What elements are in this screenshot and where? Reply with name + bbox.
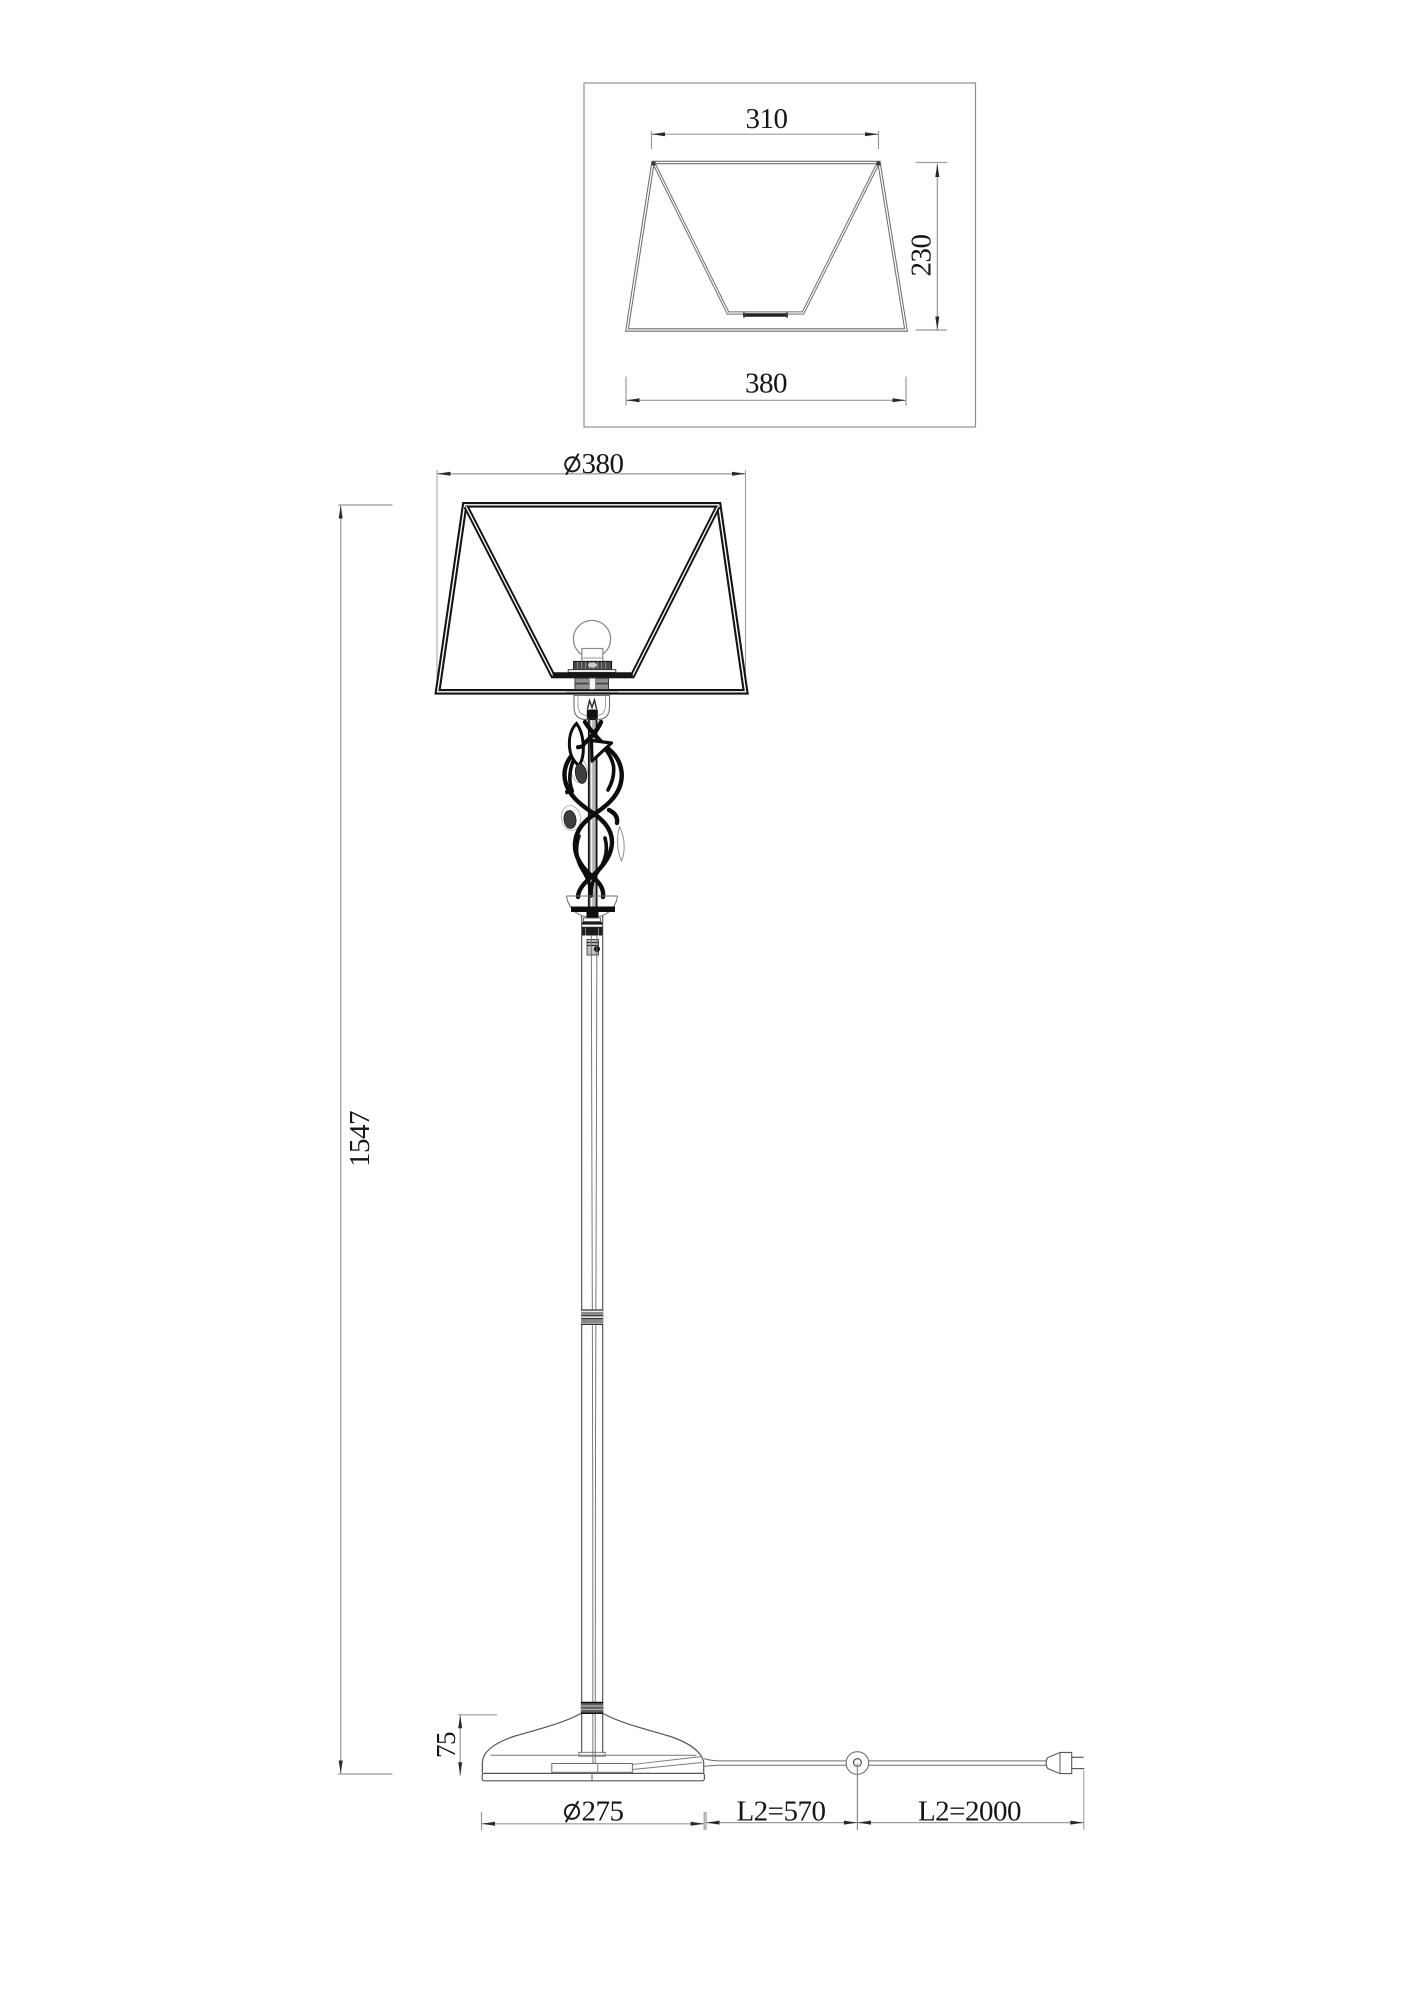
svg-text:75: 75 (431, 1732, 461, 1758)
svg-text:275: 275 (582, 1796, 624, 1828)
svg-text:310: 310 (746, 103, 788, 135)
svg-text:380: 380 (745, 367, 787, 399)
svg-text:L2=2000: L2=2000 (918, 1796, 1021, 1828)
svg-text:L2=570: L2=570 (736, 1796, 825, 1828)
svg-text:380: 380 (582, 448, 624, 480)
svg-text:1547: 1547 (344, 1111, 376, 1167)
svg-text:230: 230 (906, 235, 938, 277)
